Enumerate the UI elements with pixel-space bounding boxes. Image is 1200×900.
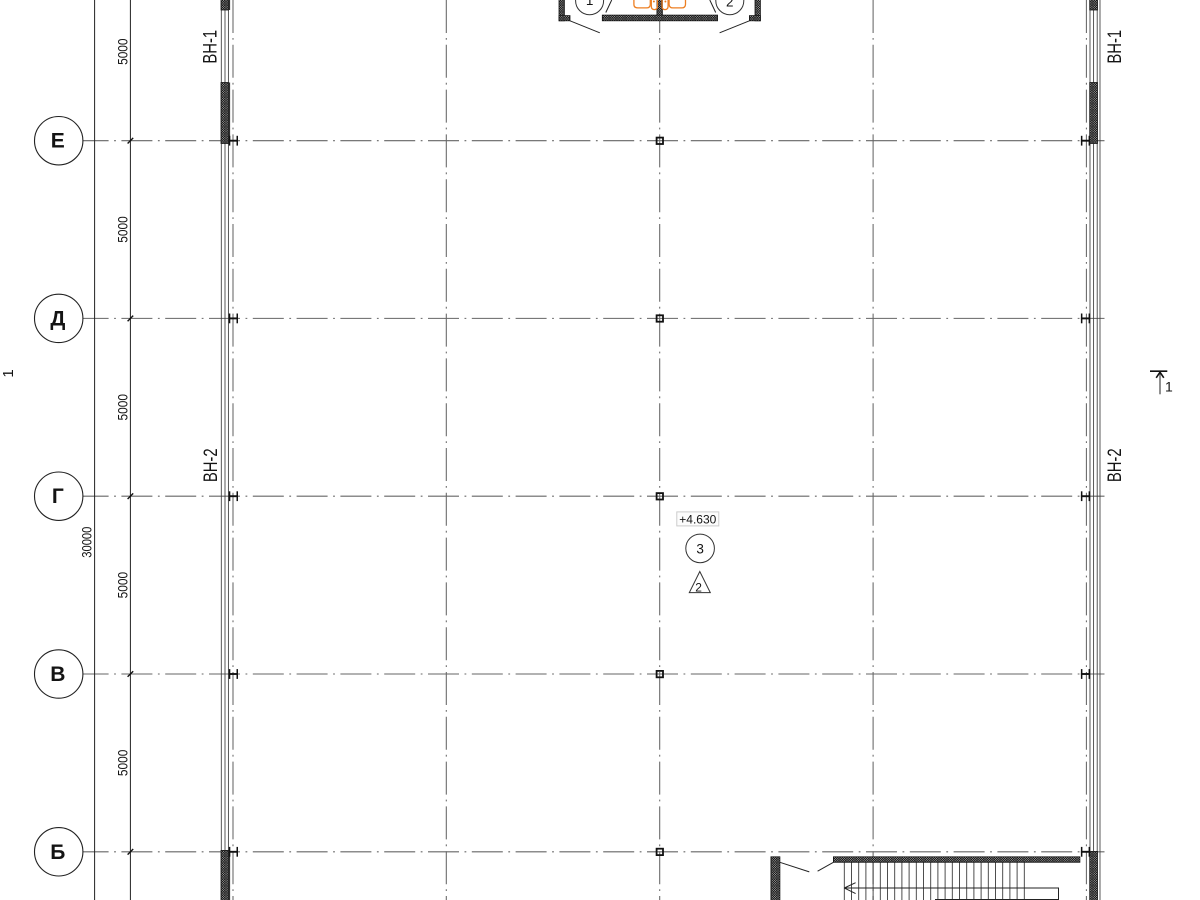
svg-text:3: 3 [696, 541, 704, 556]
svg-text:2: 2 [695, 581, 702, 595]
svg-text:1: 1 [586, 0, 594, 8]
svg-text:+4.630: +4.630 [679, 512, 716, 526]
svg-text:ВН-2: ВН-2 [200, 448, 221, 482]
svg-text:30000: 30000 [79, 527, 94, 558]
svg-text:5000: 5000 [114, 216, 130, 242]
svg-text:ВН-1: ВН-1 [200, 30, 221, 64]
svg-text:ВН-1: ВН-1 [1104, 30, 1125, 64]
svg-text:Е: Е [51, 130, 65, 153]
svg-text:5000: 5000 [114, 38, 130, 64]
svg-text:Д: Д [50, 307, 65, 330]
svg-text:5000: 5000 [114, 394, 130, 420]
svg-text:Б: Б [50, 841, 65, 864]
svg-text:Г: Г [52, 485, 64, 508]
svg-text:ВН-2: ВН-2 [1104, 448, 1125, 482]
svg-text:В: В [50, 663, 65, 686]
svg-text:5000: 5000 [114, 572, 130, 598]
svg-text:1: 1 [0, 369, 17, 377]
svg-text:1: 1 [1165, 378, 1173, 394]
svg-text:2: 2 [726, 0, 734, 10]
svg-text:5000: 5000 [114, 750, 130, 776]
